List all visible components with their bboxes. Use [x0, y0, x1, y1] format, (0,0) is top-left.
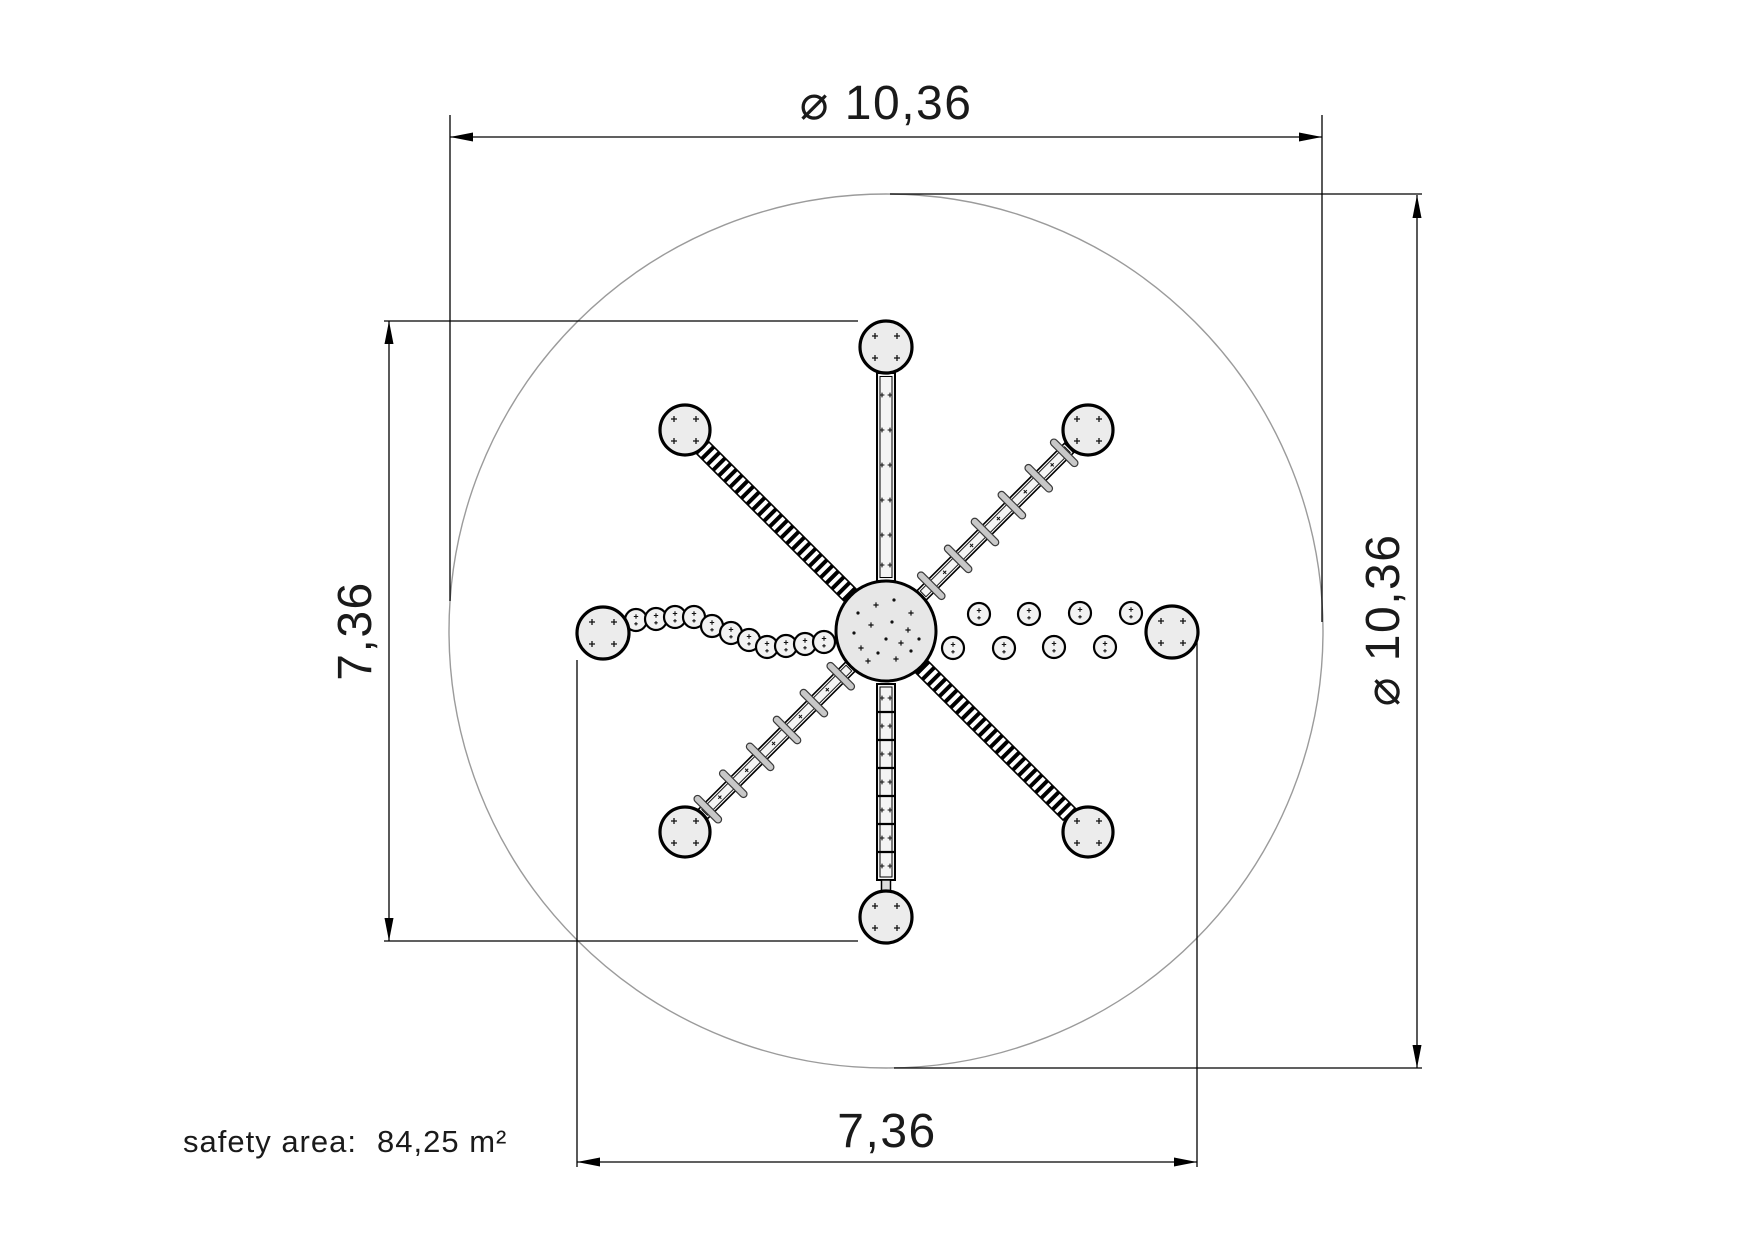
platform-east	[1146, 606, 1198, 658]
arm-northwest-ramp	[697, 442, 857, 602]
platform-west	[577, 607, 629, 659]
arm-southeast-ramp	[915, 660, 1075, 820]
hub-mark	[909, 649, 912, 652]
arm-south-ladder	[877, 684, 895, 893]
arrowhead	[450, 133, 473, 142]
arm-northeast-rungs	[909, 435, 1082, 608]
platform-circle	[1063, 405, 1113, 455]
hub-circle	[836, 581, 936, 681]
platform-northeast	[1063, 405, 1113, 455]
platform-circle	[1063, 807, 1113, 857]
arrowhead	[1413, 195, 1422, 218]
arrowhead	[385, 918, 394, 941]
arm-southwest-rungs	[690, 654, 863, 827]
hub-mark	[917, 637, 920, 640]
stepping-pod	[1043, 636, 1065, 658]
safety-area-label: safety area:	[183, 1124, 357, 1159]
hub-mark	[884, 637, 887, 640]
stepping-pod	[942, 637, 964, 659]
stepping-pod	[813, 631, 835, 653]
platform-northwest	[660, 405, 710, 455]
dimension-top-label: ⌀ 10,36	[800, 77, 973, 130]
stepping-pod	[1018, 603, 1040, 625]
platform-north	[860, 321, 912, 373]
stepping-pod	[1069, 602, 1091, 624]
central-hub	[836, 581, 936, 681]
arrowhead	[1299, 133, 1322, 142]
platform-southeast	[1063, 807, 1113, 857]
dimension-bottom-label: 7,36	[837, 1105, 936, 1158]
platform-circle	[1146, 606, 1198, 658]
hub-mark	[890, 620, 893, 623]
hub-mark	[876, 651, 879, 654]
safety-area-value: 84,25 m²	[377, 1124, 507, 1159]
stepping-pod	[993, 637, 1015, 659]
platform-southwest	[660, 807, 710, 857]
plan-drawing: ⌀ 10,36 ⌀ 10,36 7,36 7,36	[0, 0, 1753, 1240]
arrowhead	[385, 321, 394, 344]
hub-mark	[892, 598, 895, 601]
platform-circle	[660, 405, 710, 455]
stepping-pod	[1120, 602, 1142, 624]
platform-circle	[660, 807, 710, 857]
stepping-pod	[968, 603, 990, 625]
arm-north-beam	[877, 373, 895, 581]
platform-circle	[860, 891, 912, 943]
arrowhead	[1174, 1158, 1197, 1167]
platform-circle	[577, 607, 629, 659]
stepping-pod	[1094, 636, 1116, 658]
hub-mark	[856, 611, 859, 614]
safety-area-note: safety area: 84,25 m²	[183, 1124, 507, 1159]
arrowhead	[1413, 1045, 1422, 1068]
dimension-left-label: 7,36	[329, 581, 382, 680]
hub-mark	[852, 631, 855, 634]
page: ⌀ 10,36 ⌀ 10,36 7,36 7,36	[0, 0, 1753, 1240]
platform-circle	[860, 321, 912, 373]
arrowhead	[577, 1158, 600, 1167]
dimension-right-label: ⌀ 10,36	[1357, 534, 1410, 707]
platform-south	[860, 891, 912, 943]
